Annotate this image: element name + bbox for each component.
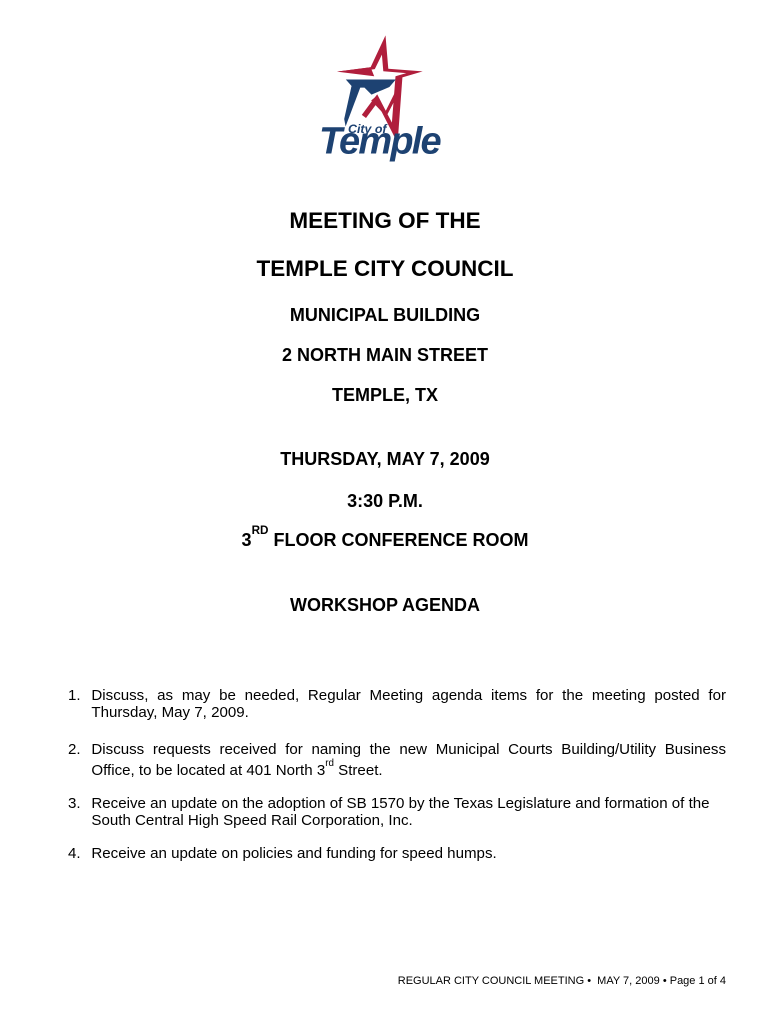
svg-text:Temple: Temple xyxy=(319,121,441,163)
